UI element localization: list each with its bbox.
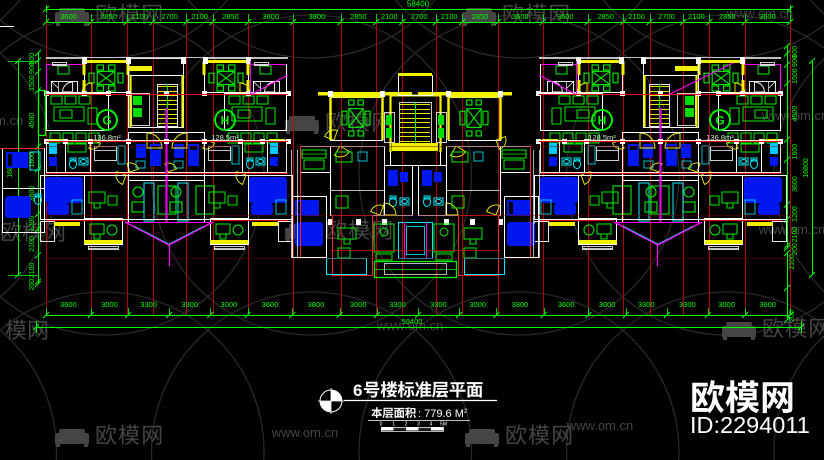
- svg-text:3600: 3600: [262, 300, 279, 309]
- svg-text:2850: 2850: [597, 12, 614, 21]
- svg-text:5M: 5M: [440, 422, 447, 428]
- svg-text:3600: 3600: [512, 12, 529, 21]
- svg-text:1600: 1600: [792, 144, 799, 160]
- svg-text:4500: 4500: [792, 106, 799, 122]
- svg-text:3300: 3300: [140, 300, 157, 309]
- svg-text:2850: 2850: [719, 12, 736, 21]
- svg-text:200: 200: [29, 279, 36, 291]
- svg-text:www.om.cn: www.om.cn: [271, 425, 338, 440]
- svg-text:3000: 3000: [221, 300, 238, 309]
- svg-text:3000: 3000: [350, 300, 367, 309]
- svg-text:3600: 3600: [792, 176, 799, 192]
- svg-text:58400: 58400: [407, 0, 430, 9]
- svg-text:3600: 3600: [60, 300, 77, 309]
- svg-text:3300: 3300: [389, 300, 406, 309]
- svg-text:www.om.cn: www.om.cn: [566, 418, 633, 433]
- svg-text:6: 6: [353, 381, 362, 400]
- svg-text:2700: 2700: [161, 12, 178, 21]
- svg-text:128.5m²: 128.5m²: [211, 133, 239, 142]
- svg-text:3300: 3300: [181, 300, 198, 309]
- svg-text:16800: 16800: [803, 158, 810, 178]
- svg-text:3800: 3800: [309, 12, 326, 21]
- svg-text:136.8m²: 136.8m²: [93, 133, 121, 142]
- svg-text:900: 900: [29, 62, 36, 74]
- svg-text:900: 900: [792, 55, 799, 67]
- svg-text:3600: 3600: [557, 12, 574, 21]
- svg-text:2850: 2850: [472, 12, 489, 21]
- svg-text:3300: 3300: [679, 300, 696, 309]
- svg-text:200: 200: [789, 310, 796, 322]
- svg-text:1200: 1200: [792, 206, 799, 222]
- svg-text:3: 3: [417, 422, 420, 428]
- svg-text:200: 200: [792, 243, 799, 255]
- svg-text:1: 1: [392, 422, 395, 428]
- svg-text:2100: 2100: [441, 12, 458, 21]
- svg-text:4500: 4500: [29, 113, 36, 129]
- svg-text:2700: 2700: [411, 12, 428, 21]
- svg-text:: 779.6 M: : 779.6 M: [418, 408, 464, 420]
- svg-text:3600: 3600: [759, 300, 776, 309]
- svg-text:G: G: [102, 114, 111, 128]
- svg-text:1500: 1500: [29, 75, 36, 91]
- svg-text:G: G: [715, 114, 724, 128]
- svg-text:4: 4: [430, 422, 433, 428]
- svg-text:0: 0: [380, 422, 383, 428]
- svg-text:H: H: [598, 114, 607, 128]
- svg-text:2100: 2100: [688, 12, 705, 21]
- svg-text:136.8m²: 136.8m²: [706, 133, 734, 142]
- svg-text:2100: 2100: [628, 12, 645, 21]
- svg-text:3000: 3000: [718, 300, 735, 309]
- svg-text:2100: 2100: [789, 254, 796, 270]
- svg-text:ID:2294011: ID:2294011: [690, 412, 810, 438]
- svg-text:2850: 2850: [350, 12, 367, 21]
- svg-text:www.om.cn: www.om.cn: [0, 113, 23, 128]
- svg-text:2100: 2100: [29, 236, 36, 252]
- svg-text:2100: 2100: [191, 12, 208, 21]
- svg-text:3600: 3600: [759, 12, 776, 21]
- svg-text:3600: 3600: [60, 12, 77, 21]
- svg-text:3600: 3600: [262, 12, 279, 21]
- svg-text:2100: 2100: [131, 12, 148, 21]
- svg-text:3300: 3300: [430, 300, 447, 309]
- svg-text:2100: 2100: [792, 227, 799, 243]
- svg-text:1500: 1500: [792, 68, 799, 84]
- svg-text:3600: 3600: [558, 300, 575, 309]
- svg-text:2100: 2100: [381, 12, 398, 21]
- svg-text:59400: 59400: [402, 317, 423, 326]
- svg-text:3000: 3000: [599, 300, 616, 309]
- svg-text:3300: 3300: [638, 300, 655, 309]
- svg-text:1200: 1200: [29, 216, 36, 232]
- svg-text:H: H: [221, 114, 230, 128]
- svg-text:3800: 3800: [308, 300, 325, 309]
- svg-text:2850: 2850: [222, 12, 239, 21]
- svg-text:3000: 3000: [469, 300, 486, 309]
- svg-text:2850: 2850: [100, 12, 117, 21]
- svg-text:128.5m²: 128.5m²: [588, 133, 616, 142]
- svg-text:2700: 2700: [658, 12, 675, 21]
- svg-text:3800: 3800: [512, 300, 529, 309]
- svg-text:2: 2: [405, 422, 408, 428]
- svg-text:3000: 3000: [101, 300, 118, 309]
